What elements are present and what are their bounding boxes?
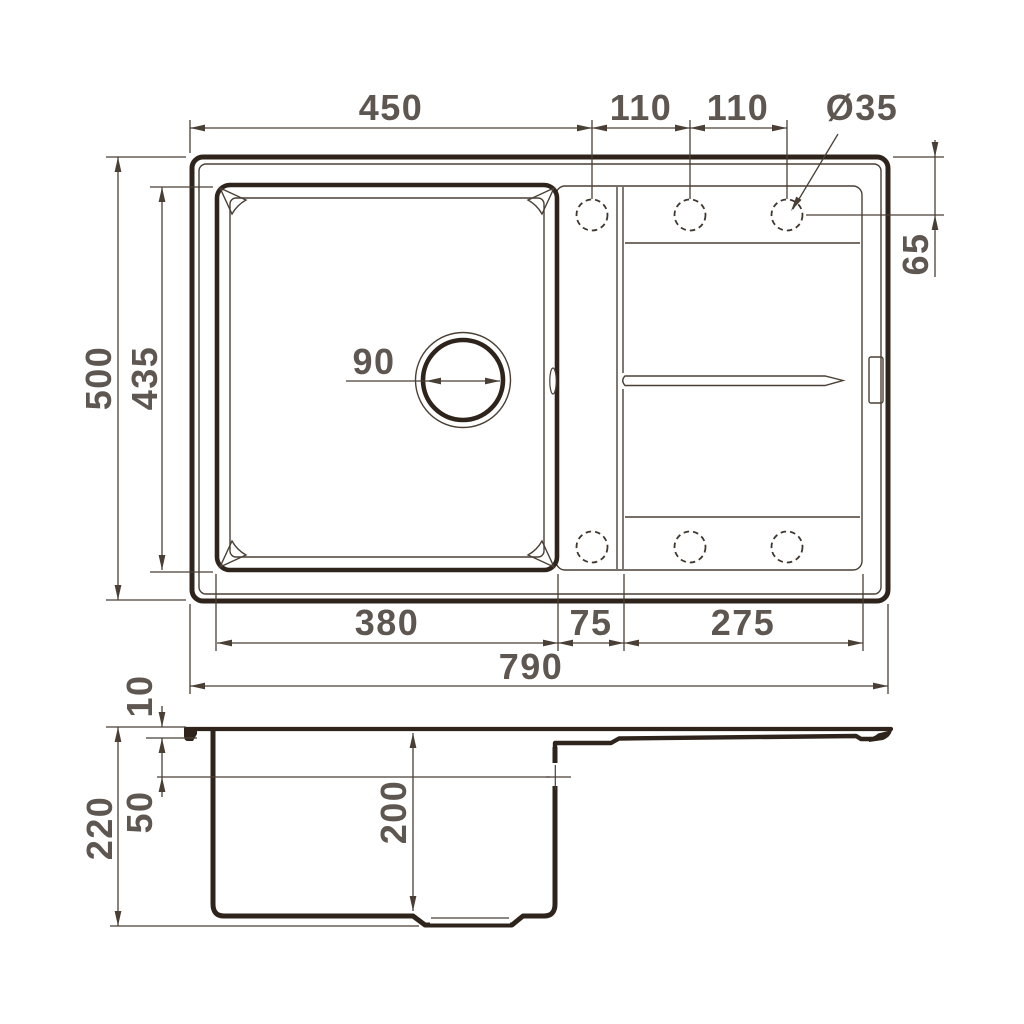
dim-label-200: 200: [373, 780, 414, 845]
faucet-hole: [577, 532, 608, 563]
basin-edge-notch: [550, 368, 556, 394]
sink-outer-edge: [192, 157, 888, 601]
dim-label-500: 500: [78, 346, 119, 411]
dim-label-10: 10: [119, 674, 160, 717]
faucet-hole: [577, 200, 608, 231]
drainboard-groove: [623, 376, 843, 386]
drain-outer-ring: [416, 333, 511, 428]
dim-label-380: 380: [355, 602, 420, 643]
drain-recess-slot: [430, 920, 510, 924]
dim-label-hole-diameter: Ø35: [826, 87, 899, 128]
dim-label-50: 50: [119, 790, 160, 833]
rim-left-lip: [184, 727, 197, 741]
faucet-hole: [772, 532, 803, 563]
basin-corner-bevel-tr: [528, 188, 554, 214]
faucet-hole: [772, 200, 803, 231]
basin-corner-bevel-tl: [220, 188, 246, 214]
sink-dimension-drawing: 450 110 110 Ø35 65 500 435 90 380 75 275…: [0, 0, 1024, 1024]
dim-arrow: [115, 125, 939, 690]
technical-drawing-page: 450 110 110 Ø35 65 500 435 90 380 75 275…: [0, 0, 1024, 1024]
dim-label-90: 90: [352, 341, 395, 382]
hole-diameter-leader-line: [793, 134, 838, 209]
dim-label-790: 790: [499, 646, 564, 687]
dim-label-450: 450: [359, 87, 424, 128]
dim-label-220: 220: [79, 796, 120, 861]
dim-label-110-first: 110: [610, 87, 673, 128]
rim-right-end-cap: [869, 730, 892, 742]
basin-corner-bevel-br: [528, 541, 554, 567]
top-view: [192, 157, 888, 601]
drainboard-surface-line: [555, 736, 872, 747]
side-view: [110, 727, 892, 926]
dim-label-65: 65: [895, 232, 936, 275]
faucet-hole: [675, 200, 706, 231]
faucet-hole: [675, 532, 706, 563]
basin-corner-bevel-bl: [220, 541, 246, 567]
side-view-dimensions: 10 50 220 200: [79, 674, 416, 926]
dim-label-435: 435: [124, 346, 165, 411]
dim-label-275: 275: [711, 602, 776, 643]
dim-label-75: 75: [569, 602, 612, 643]
dim-label-110-second: 110: [707, 87, 770, 128]
